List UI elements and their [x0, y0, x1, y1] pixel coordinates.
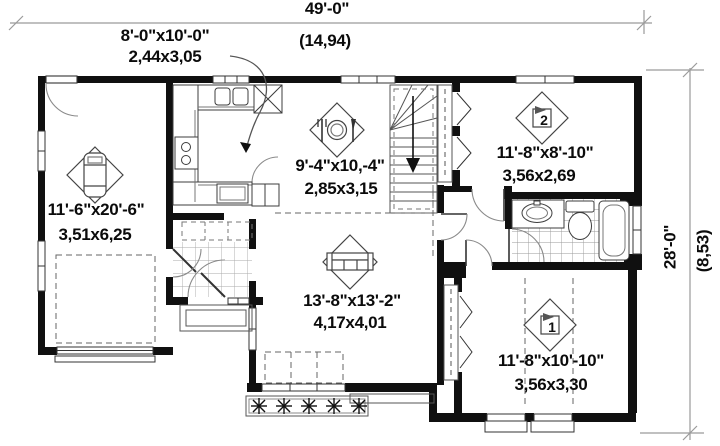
right-dimension-imperial: 28'-0": [662, 225, 681, 269]
stove-icon: [175, 137, 198, 169]
car-icon: [67, 147, 123, 203]
bedroom2-window-icon: [516, 76, 574, 83]
kitchen-size-metric: 2,44x3,05: [129, 48, 202, 67]
kitchen-door-arc: [252, 157, 278, 183]
floor-plan-drawing: 2 1: [0, 0, 720, 446]
plant-icon: [301, 398, 317, 414]
living-size-metric: 4,17x4,01: [314, 314, 387, 333]
top-dimension-metric: (14,94): [299, 32, 351, 51]
dining-icon: [310, 103, 364, 157]
dining-size-imperial: 9'-4"x10,-4": [295, 157, 384, 176]
kitchen-window-icon: [213, 76, 249, 83]
hall-door-icon: [441, 214, 467, 240]
bed-2-icon: 2: [516, 92, 568, 144]
fridge-icon: [252, 184, 279, 206]
plant-icon: [326, 398, 342, 414]
bifold-door-icon: [457, 93, 471, 125]
front-porch: [246, 394, 434, 416]
dining-size-metric: 2,85x3,15: [305, 180, 378, 199]
bedroom1-window-icon: [531, 414, 574, 432]
right-dimension-metric: (8,53): [695, 230, 714, 273]
living-window-icon: [262, 384, 345, 391]
plant-icon: [251, 398, 267, 414]
bedroom1-window-icon: [485, 414, 527, 432]
front-sidelight-icon: [228, 298, 249, 304]
bifold-door-icon: [460, 296, 472, 328]
foyer-tile-floor: [173, 242, 252, 297]
dishwasher-icon: [217, 184, 248, 203]
bedroom2-door-icon: [472, 189, 504, 221]
bedroom1-size-imperial: 11'-8"x10'-10": [498, 352, 604, 371]
garage-door-icon: [55, 347, 155, 362]
bathroom-window-icon: [633, 206, 641, 254]
dining-window-icon: [341, 76, 395, 83]
sink-icon: [512, 200, 564, 228]
living-size-imperial: 13'-8"x13'-2": [303, 292, 401, 311]
garage-window-icon: [38, 241, 45, 291]
bifold-door-icon: [457, 137, 471, 169]
plant-icon: [351, 398, 367, 414]
garage-parking-outline: [56, 255, 155, 343]
bathtub-icon: [599, 201, 629, 260]
kitchen-size-imperial: 8'-0"x10'-0": [121, 27, 210, 46]
bedroom2-size-imperial: 11'-8"x8'-10": [497, 144, 594, 163]
bedroom1-size-metric: 3,56x3,30: [515, 376, 588, 395]
garage-size-imperial: 11'-6"x20'-6": [48, 201, 145, 220]
garage-window-icon: [38, 131, 45, 171]
bifold-door-icon: [460, 336, 472, 368]
garage-size-metric: 3,51x6,25: [59, 226, 132, 245]
bed-1-icon: 1: [524, 299, 576, 351]
top-dimension-imperial: 49'-0": [305, 0, 349, 19]
floor-plan: 2 1 49'-0" (14,94) 8'-0"x10'-0" 2,44x3,0…: [0, 0, 720, 446]
plant-icon: [276, 398, 292, 414]
kitchen-fixtures: [173, 85, 282, 206]
staircase: [390, 85, 437, 213]
bedroom1-door-icon: [466, 240, 492, 266]
bedroom1-number: 1: [548, 319, 556, 335]
corner-pantry: [254, 85, 282, 113]
bedroom2-size-metric: 3,56x2,69: [503, 167, 576, 186]
toilet-icon: [566, 201, 594, 240]
bedroom2-number: 2: [540, 112, 548, 128]
garage-service-door-icon: [46, 76, 78, 116]
entry-stoop: [180, 305, 252, 331]
sofa-icon: [323, 235, 377, 289]
